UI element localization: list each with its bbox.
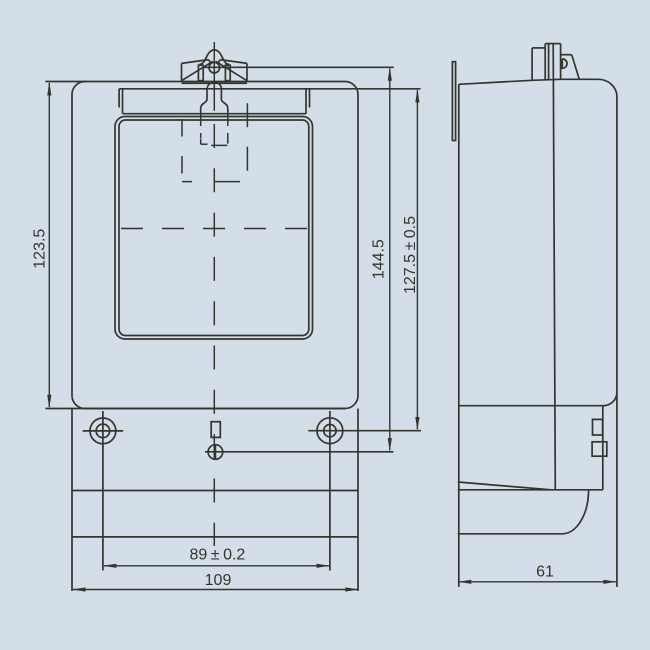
svg-text:123.5: 123.5 [31, 229, 48, 269]
svg-text:144.5: 144.5 [370, 239, 387, 279]
svg-text:61: 61 [536, 564, 554, 581]
svg-text:127.5±0.5: 127.5±0.5 [402, 216, 419, 294]
svg-text:89±0.2: 89±0.2 [190, 547, 246, 564]
svg-text:109: 109 [205, 572, 232, 589]
